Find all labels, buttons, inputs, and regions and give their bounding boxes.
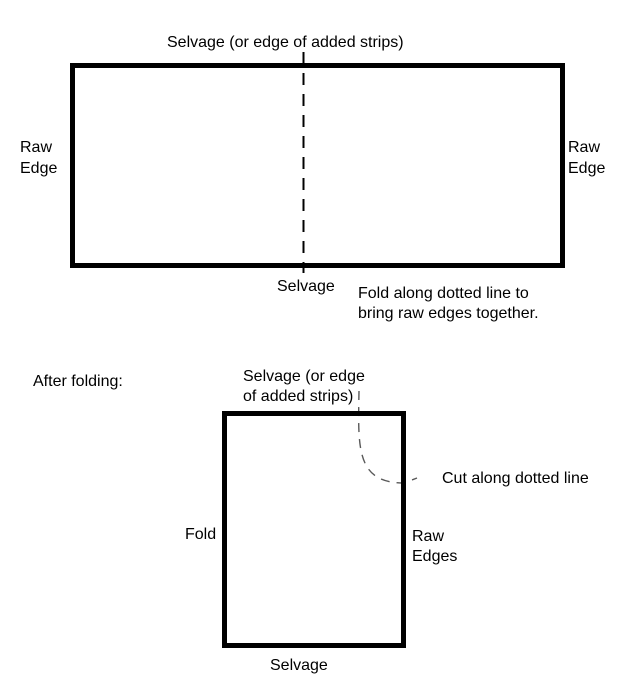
raw-edge-left-label: Raw Edge <box>20 137 57 179</box>
raw-edge-right-label: Raw Edge <box>568 137 605 179</box>
cut-instruction-label: Cut along dotted line <box>442 469 589 489</box>
fabric-rectangle-unfolded <box>70 63 565 268</box>
fabric-folding-diagram: Selvage (or edge of added strips) Raw Ed… <box>0 0 640 700</box>
fold-edge-label: Fold <box>185 525 216 545</box>
selvage-bottom-label: Selvage <box>277 277 335 297</box>
after-folding-heading: After folding: <box>33 372 123 392</box>
selvage-bottom-label-folded: Selvage <box>270 656 328 676</box>
fabric-rectangle-folded <box>222 411 406 648</box>
selvage-top-label: Selvage (or edge of added strips) <box>167 33 404 53</box>
raw-edges-label-folded: Raw Edges <box>412 527 457 567</box>
selvage-top-label-folded: Selvage (or edge of added strips) <box>243 367 365 407</box>
fold-instruction-text: Fold along dotted line to bring raw edge… <box>358 284 539 324</box>
